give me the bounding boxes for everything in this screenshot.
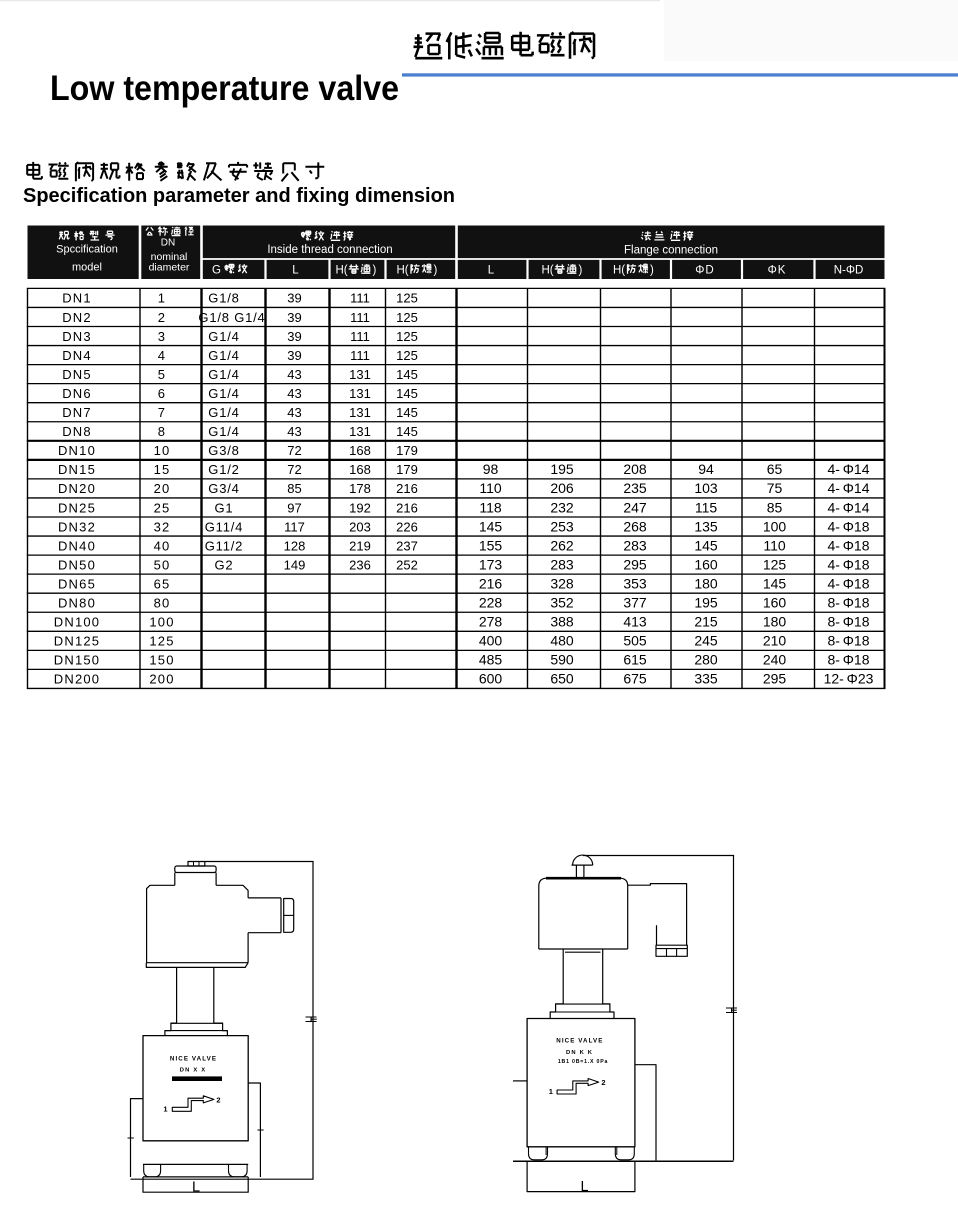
svg-text:100: 100 [149, 615, 174, 630]
svg-text:): ) [373, 265, 377, 277]
svg-text:4- Φ14: 4- Φ14 [828, 461, 870, 477]
svg-text:149: 149 [284, 557, 306, 572]
svg-text:15: 15 [154, 462, 171, 477]
svg-text:232: 232 [550, 499, 574, 515]
svg-text:280: 280 [694, 652, 718, 668]
svg-text:215: 215 [694, 614, 718, 630]
svg-text:125: 125 [149, 634, 174, 649]
svg-text:40: 40 [154, 538, 171, 553]
svg-text:DN5: DN5 [62, 367, 92, 382]
svg-text:G11/4: G11/4 [205, 519, 243, 534]
svg-text:247: 247 [623, 499, 647, 515]
svg-text:DN X X: DN X X [180, 1067, 207, 1073]
svg-text:DN25: DN25 [58, 500, 96, 515]
svg-text:295: 295 [763, 671, 787, 687]
svg-text:DN32: DN32 [58, 519, 96, 534]
svg-text:4- Φ14: 4- Φ14 [828, 499, 870, 515]
svg-text:1: 1 [163, 1105, 167, 1114]
svg-text:145: 145 [479, 518, 503, 534]
svg-text:253: 253 [550, 518, 574, 534]
svg-text:DN80: DN80 [58, 596, 96, 611]
svg-text:94: 94 [698, 461, 714, 477]
svg-text:3: 3 [158, 329, 166, 344]
svg-text:228: 228 [479, 595, 503, 611]
svg-text:125: 125 [763, 556, 787, 572]
svg-text:4- Φ14: 4- Φ14 [828, 480, 870, 496]
svg-text:353: 353 [623, 576, 647, 592]
svg-text:G11/2: G11/2 [205, 538, 243, 553]
svg-text:8- Φ18: 8- Φ18 [828, 633, 870, 649]
svg-text:4- Φ18: 4- Φ18 [828, 556, 870, 572]
svg-text:235: 235 [623, 480, 647, 496]
svg-text:DN20: DN20 [58, 481, 96, 496]
svg-text:ΦD: ΦD [695, 265, 714, 277]
svg-text:283: 283 [623, 537, 647, 553]
svg-text:75: 75 [767, 480, 783, 496]
svg-text:39: 39 [287, 348, 301, 363]
svg-text:590: 590 [550, 652, 574, 668]
svg-text:2: 2 [158, 310, 166, 325]
svg-text:): ) [650, 265, 654, 277]
svg-text:NICE VALVE: NICE VALVE [170, 1055, 217, 1062]
svg-text:DN2: DN2 [62, 310, 92, 325]
svg-text:H(: H( [613, 265, 625, 277]
svg-text:DN3: DN3 [62, 329, 92, 344]
svg-text:413: 413 [623, 614, 647, 630]
svg-text:650: 650 [550, 671, 574, 687]
svg-text:DN1: DN1 [62, 291, 92, 306]
svg-text:G2: G2 [215, 557, 234, 572]
svg-text:12- Φ23: 12- Φ23 [824, 671, 874, 687]
svg-text:Flange connection: Flange connection [624, 245, 718, 257]
svg-text:125: 125 [396, 291, 418, 306]
svg-text:G1/4: G1/4 [208, 386, 239, 401]
svg-text:278: 278 [479, 614, 503, 630]
svg-text:2: 2 [216, 1096, 220, 1105]
svg-text:G1/4: G1/4 [208, 348, 239, 363]
svg-text:H(: H( [542, 265, 554, 277]
svg-text:DN7: DN7 [62, 405, 92, 420]
svg-text:G1/4: G1/4 [208, 424, 239, 439]
svg-text:5: 5 [158, 367, 166, 382]
svg-text:131: 131 [349, 386, 371, 401]
svg-text:180: 180 [763, 614, 787, 630]
svg-text:6: 6 [158, 386, 166, 401]
svg-text:N-ΦD: N-ΦD [834, 265, 864, 277]
svg-text:131: 131 [349, 424, 371, 439]
svg-text:125: 125 [396, 329, 418, 344]
svg-text:173: 173 [479, 556, 503, 572]
svg-text:97: 97 [287, 500, 301, 515]
svg-text:model: model [72, 262, 102, 274]
svg-text:Spccification: Spccification [56, 244, 118, 256]
svg-text:252: 252 [396, 557, 418, 572]
svg-text:4: 4 [158, 348, 166, 363]
svg-text:4- Φ18: 4- Φ18 [828, 537, 870, 553]
svg-text:65: 65 [154, 577, 171, 592]
svg-text:200: 200 [149, 672, 174, 687]
svg-text:4- Φ18: 4- Φ18 [828, 576, 870, 592]
svg-text:216: 216 [479, 576, 503, 592]
svg-text:179: 179 [396, 462, 418, 477]
svg-text:128: 128 [284, 538, 306, 553]
svg-text:245: 245 [694, 633, 718, 649]
svg-text:485: 485 [479, 652, 503, 668]
svg-text:L: L [488, 265, 495, 277]
svg-text:G1/4: G1/4 [208, 367, 239, 382]
svg-text:1: 1 [158, 291, 166, 306]
svg-text:145: 145 [763, 576, 787, 592]
svg-text:85: 85 [287, 481, 301, 496]
svg-text:125: 125 [396, 310, 418, 325]
svg-text:179: 179 [396, 443, 418, 458]
svg-text:480: 480 [550, 633, 574, 649]
svg-text:283: 283 [550, 556, 574, 572]
svg-text:DN8: DN8 [62, 424, 92, 439]
svg-text:145: 145 [396, 386, 418, 401]
svg-text:20: 20 [154, 481, 171, 496]
svg-text:505: 505 [623, 633, 647, 649]
svg-text:25: 25 [154, 500, 171, 515]
svg-text:110: 110 [763, 537, 786, 553]
svg-text:): ) [434, 265, 438, 277]
svg-text:Specification parameter and fi: Specification parameter and fixing dimen… [23, 185, 455, 207]
svg-text:7: 7 [158, 405, 166, 420]
svg-text:39: 39 [287, 291, 301, 306]
svg-text:675: 675 [623, 671, 647, 687]
svg-text:DN40: DN40 [58, 538, 96, 553]
svg-text:Low temperature valve: Low temperature valve [50, 69, 399, 108]
svg-text:236: 236 [349, 557, 371, 572]
svg-text:DN K K: DN K K [566, 1050, 593, 1056]
svg-text:G1/8: G1/8 [208, 291, 239, 306]
svg-text:131: 131 [349, 367, 371, 382]
svg-text:DN6: DN6 [62, 386, 92, 401]
svg-text:85: 85 [767, 499, 783, 515]
svg-text:10: 10 [154, 443, 171, 458]
svg-text:103: 103 [694, 480, 718, 496]
svg-text:111: 111 [350, 348, 370, 363]
svg-text:NICE VALVE: NICE VALVE [556, 1037, 603, 1044]
svg-text:43: 43 [287, 405, 301, 420]
svg-text:328: 328 [550, 576, 574, 592]
svg-text:388: 388 [550, 614, 574, 630]
svg-text:DN15: DN15 [58, 462, 96, 477]
svg-text:150: 150 [149, 653, 174, 668]
svg-text:118: 118 [479, 499, 502, 515]
svg-text:400: 400 [479, 633, 503, 649]
svg-text:43: 43 [287, 424, 301, 439]
svg-text:178: 178 [349, 481, 371, 496]
svg-text:G3/4: G3/4 [208, 481, 239, 496]
svg-text:2: 2 [601, 1078, 605, 1087]
svg-text:39: 39 [287, 310, 301, 325]
svg-text:DN65: DN65 [58, 577, 96, 592]
svg-text:335: 335 [694, 671, 718, 687]
svg-text:160: 160 [763, 595, 787, 611]
svg-text:1: 1 [549, 1087, 553, 1096]
svg-text:216: 216 [396, 500, 418, 515]
svg-text:DN: DN [161, 238, 175, 249]
svg-text:1B1 0B=1.X 0Pa: 1B1 0B=1.X 0Pa [558, 1059, 608, 1065]
svg-text:G1: G1 [215, 500, 234, 515]
svg-text:DN10: DN10 [58, 443, 96, 458]
svg-text:110: 110 [479, 480, 502, 496]
svg-text:8- Φ18: 8- Φ18 [828, 652, 870, 668]
svg-text:43: 43 [287, 386, 301, 401]
svg-text:206: 206 [550, 480, 574, 496]
svg-text:H(: H( [397, 265, 409, 277]
svg-text:80: 80 [154, 596, 171, 611]
svg-text:111: 111 [350, 329, 370, 344]
svg-text:195: 195 [694, 595, 718, 611]
svg-text:Inside thread connection: Inside thread connection [267, 244, 392, 256]
svg-text:111: 111 [350, 291, 370, 306]
svg-text:H(: H( [336, 265, 348, 277]
svg-text:117: 117 [284, 519, 305, 534]
svg-text:100: 100 [763, 518, 787, 534]
svg-text:240: 240 [763, 652, 787, 668]
svg-text:145: 145 [396, 405, 418, 420]
svg-text:203: 203 [349, 519, 371, 534]
svg-text:L: L [192, 1180, 200, 1196]
svg-text:155: 155 [479, 537, 503, 553]
svg-text:145: 145 [396, 367, 418, 382]
svg-text:268: 268 [623, 518, 647, 534]
svg-text:98: 98 [483, 461, 499, 477]
svg-text:43: 43 [287, 367, 301, 382]
svg-text:8- Φ18: 8- Φ18 [828, 595, 870, 611]
svg-text:145: 145 [396, 424, 418, 439]
svg-text:DN4: DN4 [62, 348, 92, 363]
svg-text:131: 131 [349, 405, 371, 420]
svg-text:226: 226 [396, 519, 418, 534]
svg-text:262: 262 [550, 537, 574, 553]
svg-text:DN50: DN50 [58, 557, 96, 572]
svg-text:32: 32 [154, 519, 171, 534]
svg-text:168: 168 [349, 462, 371, 477]
svg-text:8- Φ18: 8- Φ18 [828, 614, 870, 630]
svg-text:180: 180 [694, 576, 718, 592]
svg-text:4- Φ18: 4- Φ18 [828, 518, 870, 534]
svg-text:G: G [212, 265, 221, 277]
svg-text:DN200: DN200 [54, 672, 100, 687]
svg-text:615: 615 [623, 652, 647, 668]
svg-text:195: 195 [550, 461, 574, 477]
svg-text:111: 111 [350, 310, 370, 325]
svg-text:DN125: DN125 [54, 634, 100, 649]
svg-text:125: 125 [396, 348, 418, 363]
svg-text:208: 208 [623, 461, 647, 477]
svg-text:216: 216 [396, 481, 418, 496]
svg-text:168: 168 [349, 443, 371, 458]
svg-text:39: 39 [287, 329, 301, 344]
svg-text:135: 135 [694, 518, 718, 534]
svg-text:G1/4: G1/4 [208, 405, 239, 420]
svg-text:L: L [580, 1179, 588, 1195]
svg-text:DN150: DN150 [54, 653, 100, 668]
svg-text:ΦK: ΦK [768, 265, 787, 277]
svg-text:): ) [579, 265, 583, 277]
svg-text:160: 160 [694, 556, 718, 572]
svg-text:600: 600 [479, 671, 503, 687]
svg-text:237: 237 [396, 538, 418, 553]
svg-text:diameter: diameter [149, 262, 190, 274]
svg-text:DN100: DN100 [54, 615, 100, 630]
svg-text:192: 192 [349, 500, 371, 515]
svg-text:210: 210 [763, 633, 787, 649]
svg-text:219: 219 [349, 538, 371, 553]
svg-text:8: 8 [158, 424, 166, 439]
svg-text:G3/8: G3/8 [208, 443, 239, 458]
svg-text:G1/2: G1/2 [208, 462, 239, 477]
svg-text:352: 352 [550, 595, 574, 611]
svg-text:65: 65 [767, 461, 783, 477]
svg-text:295: 295 [623, 556, 647, 572]
svg-text:72: 72 [287, 462, 301, 477]
svg-text:G1/4: G1/4 [208, 329, 239, 344]
svg-text:145: 145 [694, 537, 718, 553]
svg-text:72: 72 [287, 443, 301, 458]
svg-text:L: L [292, 265, 299, 277]
svg-text:377: 377 [623, 595, 647, 611]
svg-text:50: 50 [154, 557, 171, 572]
svg-text:G1/8 G1/4: G1/8 G1/4 [198, 310, 265, 325]
svg-text:115: 115 [695, 499, 718, 515]
